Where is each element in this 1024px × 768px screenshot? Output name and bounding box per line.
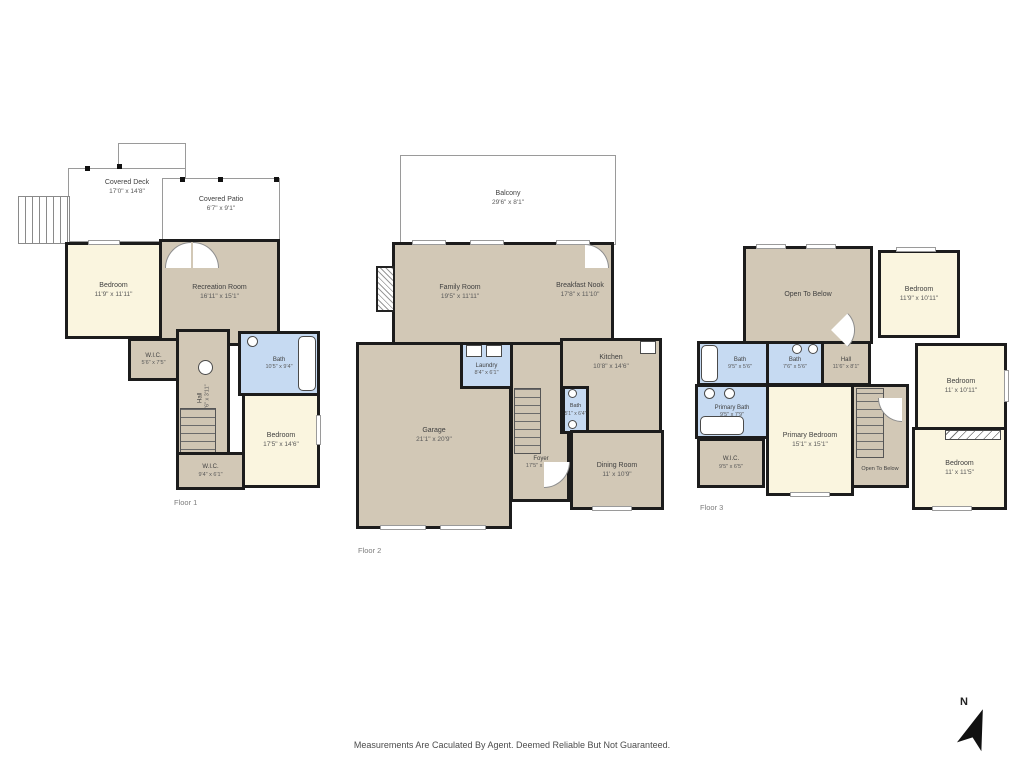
room-dims: 10'5" x 9'4" bbox=[265, 364, 292, 371]
room-name: Kitchen bbox=[599, 353, 622, 363]
deck-post bbox=[117, 164, 122, 169]
sink-icon bbox=[724, 388, 735, 399]
window bbox=[88, 240, 120, 245]
f2-room-dining: Dining Room 11' x 10'9" bbox=[570, 430, 664, 510]
f1-room-wic: W.I.C. 5'6" x 7'5" bbox=[128, 338, 179, 381]
room-name: Hall bbox=[841, 356, 851, 364]
f1-room-wic-2: W.I.C. 9'4" x 6'1" bbox=[176, 452, 245, 490]
room-dims: 11'6" x 8'1" bbox=[833, 364, 860, 371]
room-dims: 10'8" x 14'6" bbox=[593, 363, 629, 371]
balcony: Balcony 29'6" x 8'1" bbox=[400, 155, 616, 245]
sink-icon bbox=[568, 389, 577, 398]
deck-stairs bbox=[18, 196, 70, 244]
f2-breakfast-label: Breakfast Nook 17'8" x 11'10" bbox=[540, 281, 620, 299]
window bbox=[440, 525, 486, 530]
window bbox=[932, 506, 972, 511]
room-dims: 9'5" x 5'6" bbox=[728, 364, 752, 371]
floor-2-caption: Floor 2 bbox=[358, 546, 381, 555]
washer-icon bbox=[466, 345, 482, 357]
room-dims: 17'5" x 14'6" bbox=[263, 441, 299, 449]
f1-stairs bbox=[180, 408, 216, 458]
compass-north-label: N bbox=[960, 696, 968, 708]
room-dims: 11' x 11'5" bbox=[945, 469, 974, 477]
room-name: Balcony bbox=[496, 189, 521, 199]
room-dims: 7'6" x 5'6" bbox=[783, 364, 807, 371]
room-name: Bedroom bbox=[905, 285, 933, 295]
f2-stairs bbox=[514, 388, 541, 454]
toilet-icon bbox=[568, 420, 577, 429]
room-dims: 9'4" x 6'1" bbox=[198, 472, 222, 479]
room-dims: 29'6" x 8'1" bbox=[492, 199, 524, 207]
bathtub-icon bbox=[298, 336, 316, 391]
sink-icon bbox=[704, 388, 715, 399]
compass: N bbox=[946, 696, 1006, 760]
toilet-icon bbox=[247, 336, 258, 347]
f2-family-label: Family Room 19'5" x 11'11" bbox=[420, 283, 500, 301]
covered-patio: Covered Patio 6'7" x 9'1" bbox=[162, 178, 280, 242]
f3-room-primary-bedroom: Primary Bedroom 15'1" x 15'1" bbox=[766, 384, 854, 496]
room-dims: 11'9" x 10'11" bbox=[900, 295, 938, 303]
f3-room-bedroom-rm: Bedroom 11' x 10'11" bbox=[915, 343, 1007, 430]
room-name: W.I.C. bbox=[202, 463, 218, 471]
window bbox=[790, 492, 830, 497]
f1-room-bedroom-2: Bedroom 17'5" x 14'6" bbox=[242, 393, 320, 488]
room-name: Bath bbox=[273, 356, 285, 364]
room-name: Primary Bedroom bbox=[783, 431, 837, 441]
closet-organizer bbox=[945, 430, 1001, 440]
room-dims: 11'9" x 11'11" bbox=[95, 291, 133, 299]
f3-room-hall: Hall 11'6" x 8'1" bbox=[821, 341, 871, 386]
room-name: Bath bbox=[734, 356, 746, 364]
room-name: Dining Room bbox=[597, 461, 637, 471]
room-name: Recreation Room bbox=[192, 283, 246, 293]
window bbox=[556, 240, 590, 245]
patio-post bbox=[274, 177, 279, 182]
window bbox=[380, 525, 426, 530]
room-name: Hall bbox=[197, 393, 205, 403]
room-dims: 8'4" x 6'1" bbox=[474, 370, 498, 377]
window bbox=[806, 244, 836, 249]
room-name: Bedroom bbox=[267, 431, 295, 441]
compass-arrow-icon bbox=[946, 696, 1006, 760]
stove-icon bbox=[640, 341, 656, 354]
room-name: W.I.C. bbox=[723, 455, 739, 463]
room-dims: 11' x 10'11" bbox=[945, 387, 977, 395]
room-name: Covered Deck bbox=[105, 178, 149, 188]
room-dims: 9'5" x 6'5" bbox=[719, 464, 743, 471]
floor-1-caption: Floor 1 bbox=[174, 498, 197, 507]
sink-icon bbox=[808, 344, 818, 354]
room-dims: 15'1" x 15'1" bbox=[792, 441, 828, 449]
dryer-icon bbox=[486, 345, 502, 357]
room-name: Bedroom bbox=[99, 281, 127, 291]
window bbox=[756, 244, 786, 249]
room-dims: 17'0" x 14'8" bbox=[109, 188, 145, 196]
room-name: Bath bbox=[789, 356, 801, 364]
patio-post bbox=[180, 177, 185, 182]
room-name: Garage bbox=[422, 426, 445, 436]
f3-room-bedroom-tr: Bedroom 11'9" x 10'11" bbox=[878, 250, 960, 338]
room-name: Open To Below bbox=[784, 290, 831, 300]
room-name: Bedroom bbox=[947, 377, 975, 387]
room-name: Bedroom bbox=[945, 459, 973, 469]
room-name: W.I.C. bbox=[145, 352, 161, 360]
window bbox=[470, 240, 504, 245]
floor-3-caption: Floor 3 bbox=[700, 503, 723, 512]
room-name: Laundry bbox=[476, 362, 498, 370]
room-dims: 5'1" x 6'4" bbox=[565, 411, 587, 418]
floorplan-sheet: Covered Deck 17'0" x 14'8" Covered Patio… bbox=[0, 0, 1024, 768]
toilet-icon bbox=[792, 344, 802, 354]
measurement-disclaimer: Measurements Are Caculated By Agent. Dee… bbox=[0, 740, 1024, 750]
f3-open-below-label: Open To Below bbox=[853, 466, 907, 474]
room-dims: 6'7" x 9'1" bbox=[207, 205, 235, 213]
window bbox=[1004, 370, 1009, 402]
bathtub-icon bbox=[700, 416, 744, 435]
f3-room-wic: W.I.C. 9'5" x 6'5" bbox=[697, 438, 765, 488]
room-name: Covered Patio bbox=[199, 195, 243, 205]
room-name: Bath bbox=[570, 403, 581, 411]
patio-post bbox=[218, 177, 223, 182]
window bbox=[316, 415, 321, 445]
window bbox=[896, 247, 936, 252]
bathtub-icon bbox=[701, 345, 718, 382]
f1-room-bedroom: Bedroom 11'9" x 11'11" bbox=[65, 242, 162, 339]
furnace-icon bbox=[198, 360, 213, 375]
window bbox=[592, 506, 632, 511]
window bbox=[412, 240, 446, 245]
room-dims: 21'1" x 20'9" bbox=[416, 436, 452, 444]
room-dims: 16'11" x 15'1" bbox=[200, 293, 239, 301]
room-dims: 5'6" x 7'5" bbox=[141, 360, 165, 367]
room-name: Primary Bath bbox=[715, 404, 750, 412]
deck-post bbox=[85, 166, 90, 171]
fireplace bbox=[376, 266, 395, 312]
room-dims: 11' x 10'9" bbox=[602, 471, 631, 479]
